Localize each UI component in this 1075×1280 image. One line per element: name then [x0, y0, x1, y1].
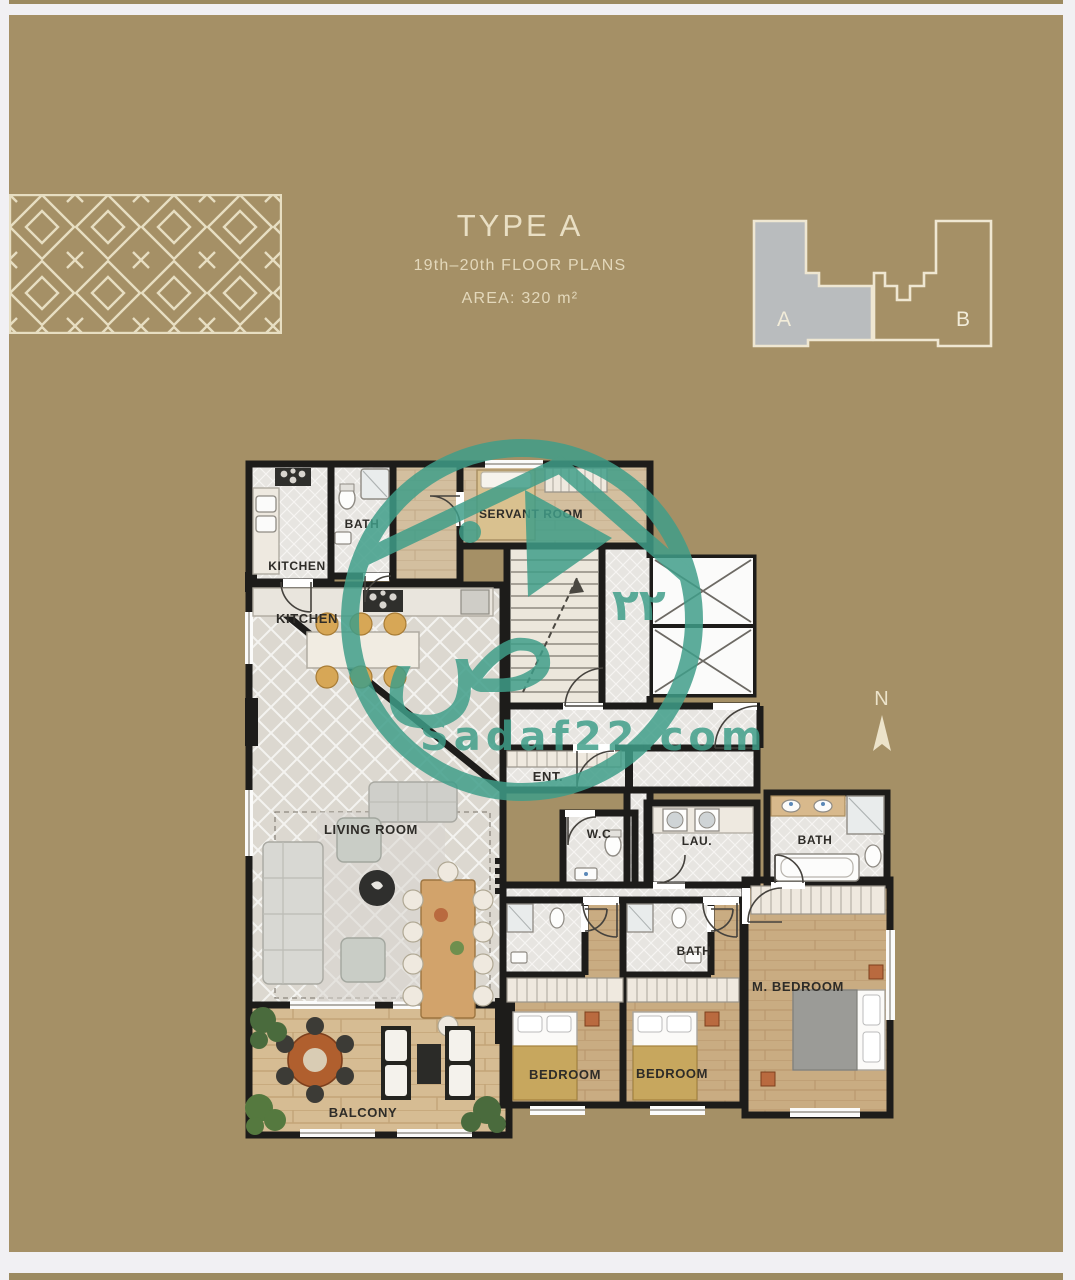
label-master-bedroom: M. BEDROOM	[752, 979, 844, 994]
label-bath-master: BATH	[798, 833, 833, 847]
label-living-room: LIVING ROOM	[324, 822, 418, 837]
decorative-pattern	[9, 194, 282, 334]
label-wc: W.C	[587, 827, 611, 841]
label-bedroom-2: BEDROOM	[636, 1066, 708, 1081]
page-title: TYPE A	[330, 208, 710, 244]
pattern-border	[10, 195, 281, 333]
photo-edge-bottom	[0, 1273, 1075, 1280]
floors-subtitle: 19th–20th FLOOR PLANS	[330, 257, 710, 275]
area-label: AREA: 320 m²	[330, 290, 710, 308]
frame-right	[1063, 0, 1075, 1280]
label-balcony: BALCONY	[329, 1105, 397, 1120]
label-bath-middle: BATH	[677, 944, 712, 958]
label-bedroom-1: BEDROOM	[529, 1067, 601, 1082]
brochure-page: TYPE A 19th–20th FLOOR PLANS AREA: 320 m…	[0, 0, 1075, 1280]
keyplan-label-b: B	[956, 308, 970, 331]
watermark-site-url: Sadaf22.com	[420, 714, 760, 760]
title-block: TYPE A 19th–20th FLOOR PLANS AREA: 320 m…	[330, 208, 710, 308]
watermark-logo: ص ٢٢ Sadaf22.com	[350, 448, 760, 792]
watermark: ص ٢٢ Sadaf22.com	[320, 420, 760, 810]
keyplan-unit-a	[754, 221, 872, 346]
building-key-plan: A B	[750, 215, 995, 355]
watermark-arabic-number: ٢٢	[612, 580, 666, 631]
label-kitchen-small: KITCHEN	[268, 559, 326, 573]
frame-left	[0, 0, 9, 1280]
frame-bottom	[0, 1252, 1075, 1273]
keyplan-unit-b	[874, 221, 991, 346]
label-laundry: LAU.	[682, 834, 712, 848]
keyplan-label-a: A	[777, 308, 791, 331]
watermark-arabic-letter: ص	[380, 554, 561, 729]
laundry-fixtures	[653, 807, 753, 833]
frame-top	[0, 4, 1075, 15]
